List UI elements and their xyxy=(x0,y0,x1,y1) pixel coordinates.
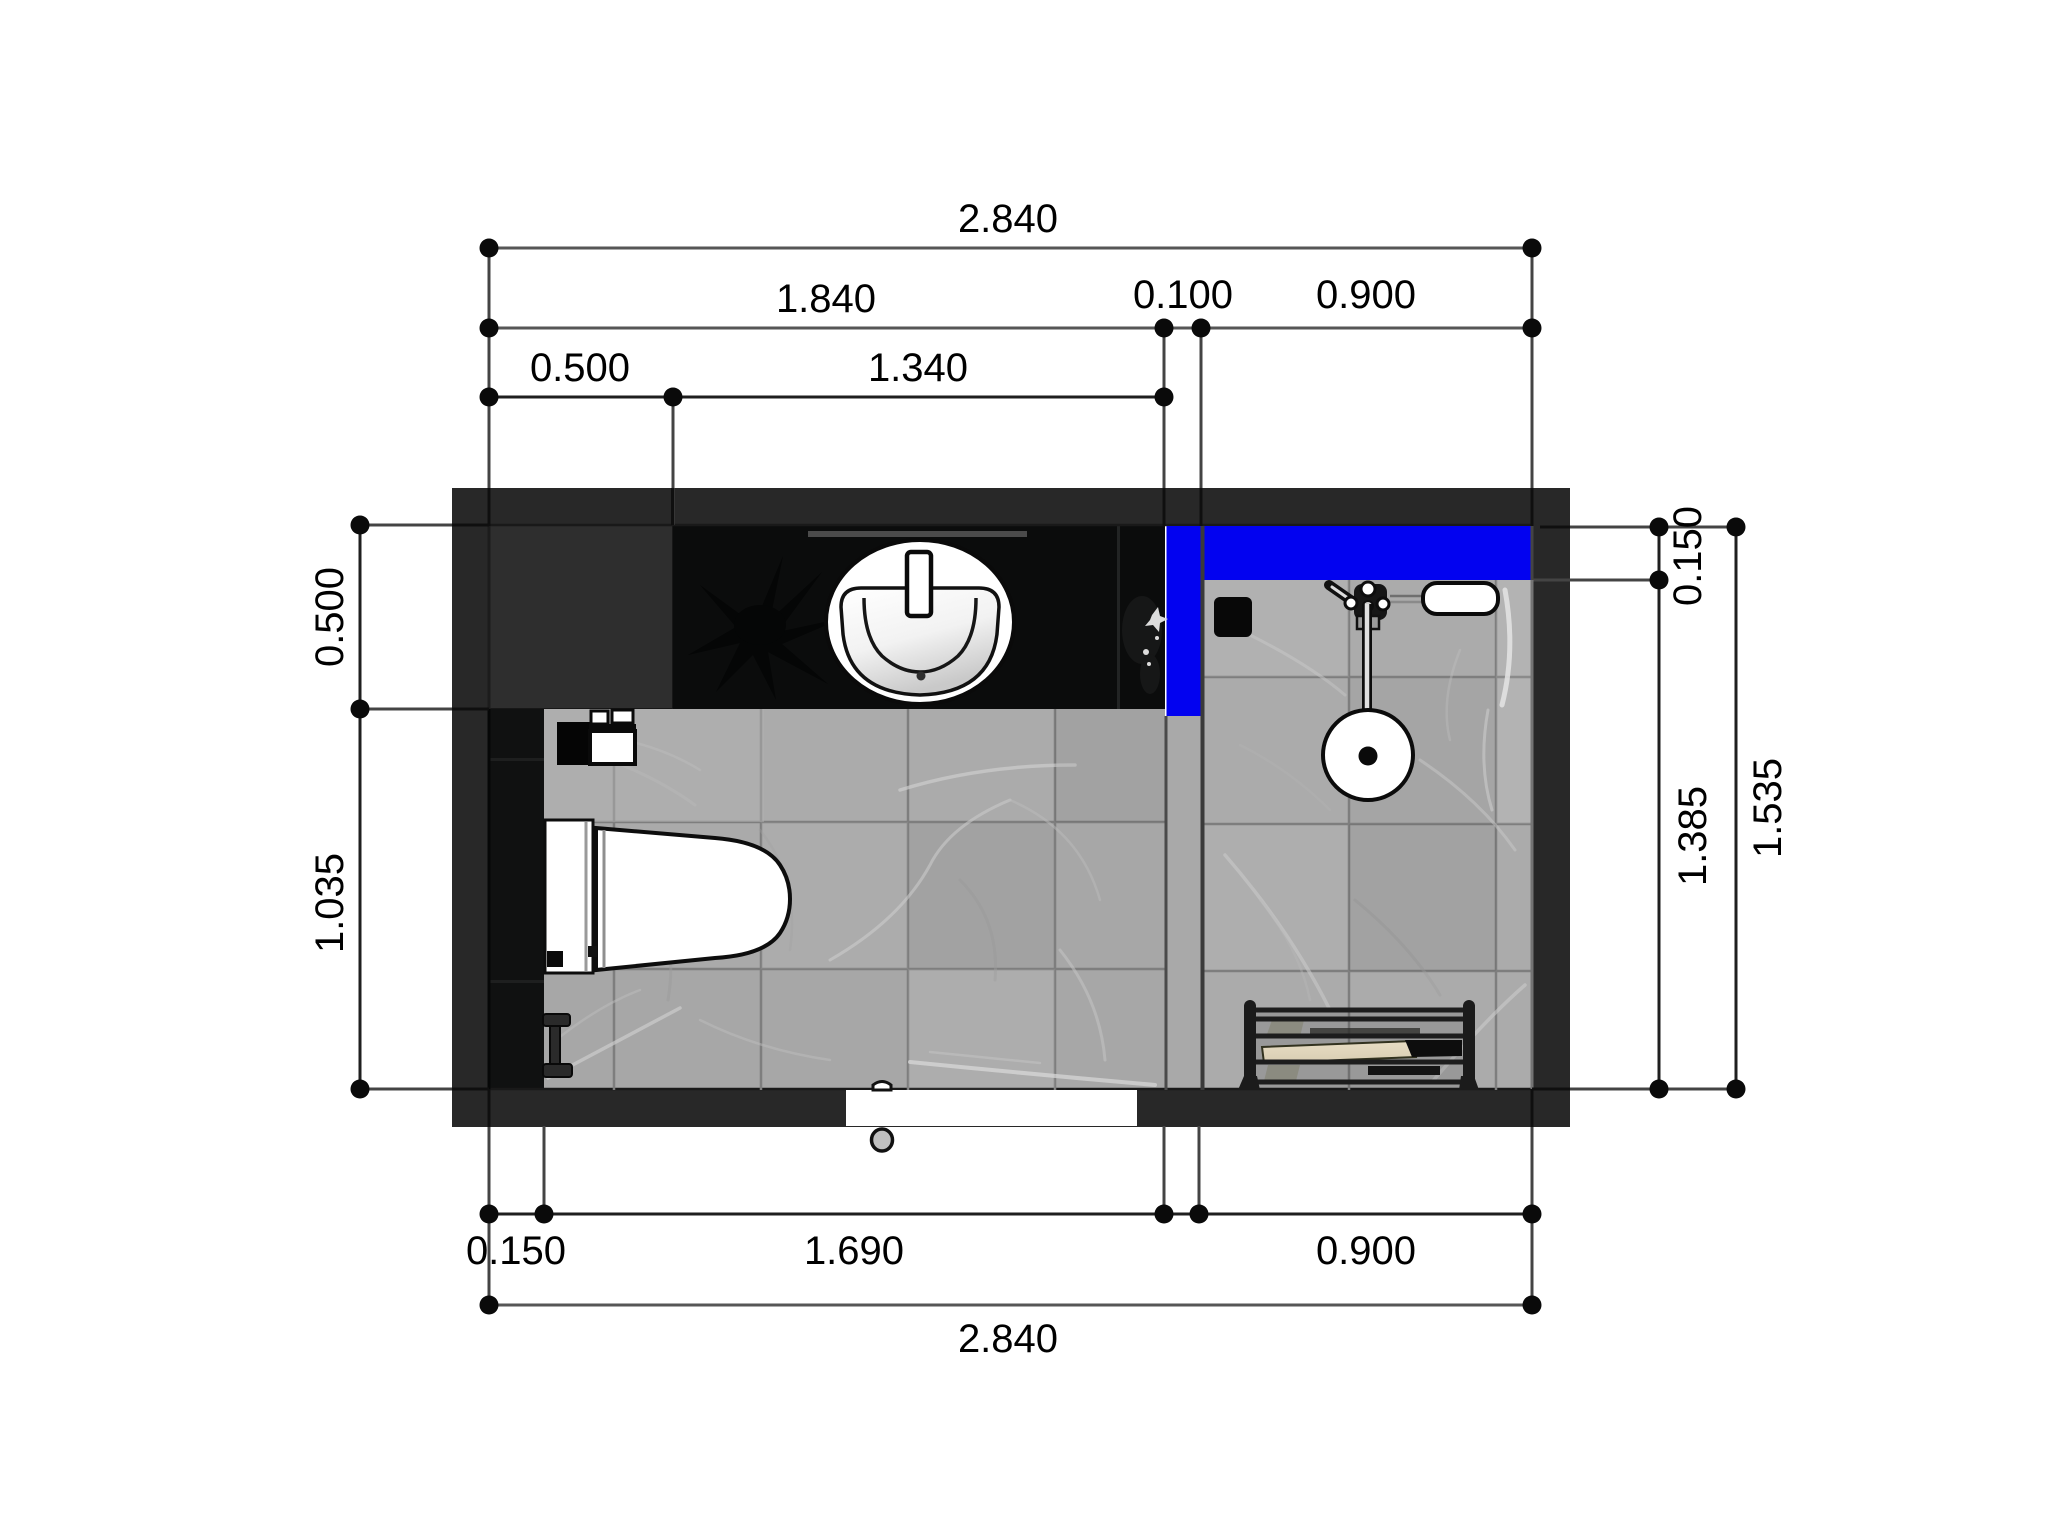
svg-text:0.900: 0.900 xyxy=(1316,1229,1416,1273)
svg-text:1.535: 1.535 xyxy=(1746,758,1790,858)
svg-text:1.690: 1.690 xyxy=(804,1229,904,1273)
svg-text:2.840: 2.840 xyxy=(958,1317,1058,1361)
svg-text:0.900: 0.900 xyxy=(1316,273,1416,317)
svg-text:1.840: 1.840 xyxy=(776,277,876,321)
svg-text:1.385: 1.385 xyxy=(1671,786,1715,886)
svg-text:1.035: 1.035 xyxy=(308,853,352,953)
svg-text:0.150: 0.150 xyxy=(466,1229,566,1273)
svg-text:2.840: 2.840 xyxy=(958,197,1058,241)
svg-text:0.500: 0.500 xyxy=(308,567,352,667)
svg-text:0.500: 0.500 xyxy=(530,346,630,390)
svg-text:0.100: 0.100 xyxy=(1133,273,1233,317)
svg-text:0.150: 0.150 xyxy=(1666,506,1710,606)
svg-text:1.340: 1.340 xyxy=(868,346,968,390)
